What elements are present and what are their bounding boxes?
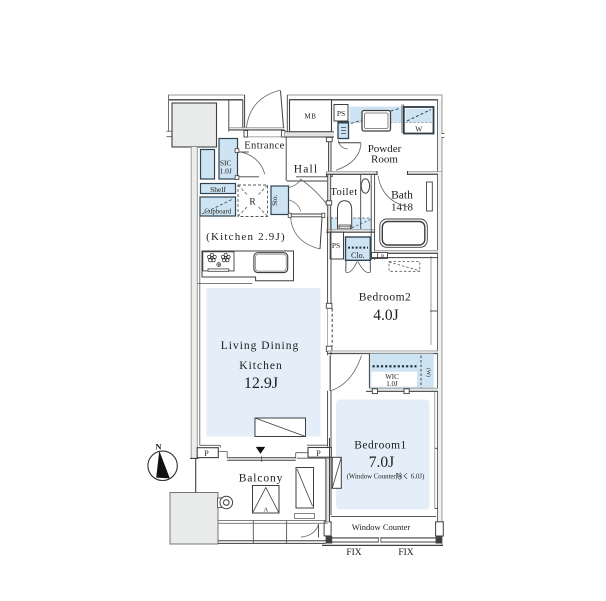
svg-text:(Kitchen 2.9J): (Kitchen 2.9J) bbox=[206, 231, 286, 243]
svg-text:PS: PS bbox=[332, 241, 340, 250]
svg-text:1.0J: 1.0J bbox=[386, 380, 398, 388]
svg-text:Window Counter: Window Counter bbox=[352, 522, 411, 532]
svg-text:N: N bbox=[155, 442, 162, 452]
svg-text:Bedroom1: Bedroom1 bbox=[354, 440, 407, 452]
svg-text:MB: MB bbox=[305, 112, 317, 120]
svg-text:FIX: FIX bbox=[346, 548, 361, 558]
svg-text:Entrance: Entrance bbox=[244, 141, 285, 152]
svg-text:12.9J: 12.9J bbox=[244, 375, 278, 392]
svg-text:Cupboard: Cupboard bbox=[204, 209, 231, 216]
svg-text:Toilet: Toilet bbox=[330, 187, 357, 198]
svg-text:Sto.: Sto. bbox=[271, 195, 279, 206]
svg-text:P: P bbox=[204, 449, 209, 458]
svg-text:Balcony: Balcony bbox=[239, 473, 284, 485]
svg-text:Bath: Bath bbox=[391, 190, 413, 202]
svg-text:Clo.: Clo. bbox=[351, 251, 365, 260]
svg-text:W: W bbox=[415, 125, 423, 134]
svg-text:1418: 1418 bbox=[391, 202, 414, 214]
svg-text:R: R bbox=[249, 198, 256, 208]
svg-text:Room: Room bbox=[371, 154, 398, 166]
svg-text:Kitchen: Kitchen bbox=[239, 360, 282, 372]
svg-text:P: P bbox=[381, 254, 384, 260]
svg-text:Shelf: Shelf bbox=[210, 185, 226, 194]
svg-text:Hall: Hall bbox=[294, 164, 319, 176]
svg-text:(W): (W) bbox=[425, 368, 432, 377]
svg-text:A: A bbox=[263, 507, 268, 514]
svg-text:Living Dining: Living Dining bbox=[221, 340, 300, 352]
svg-text:P: P bbox=[316, 449, 321, 458]
svg-text:7.0J: 7.0J bbox=[369, 454, 394, 471]
svg-text:1.0J: 1.0J bbox=[220, 166, 232, 175]
svg-text:Bedroom2: Bedroom2 bbox=[359, 292, 412, 304]
svg-text:4.0J: 4.0J bbox=[373, 307, 398, 324]
svg-text:FIX: FIX bbox=[398, 548, 413, 558]
svg-text:PS: PS bbox=[337, 109, 345, 118]
svg-text:(Window Counter除く 6.0J): (Window Counter除く 6.0J) bbox=[347, 472, 425, 481]
